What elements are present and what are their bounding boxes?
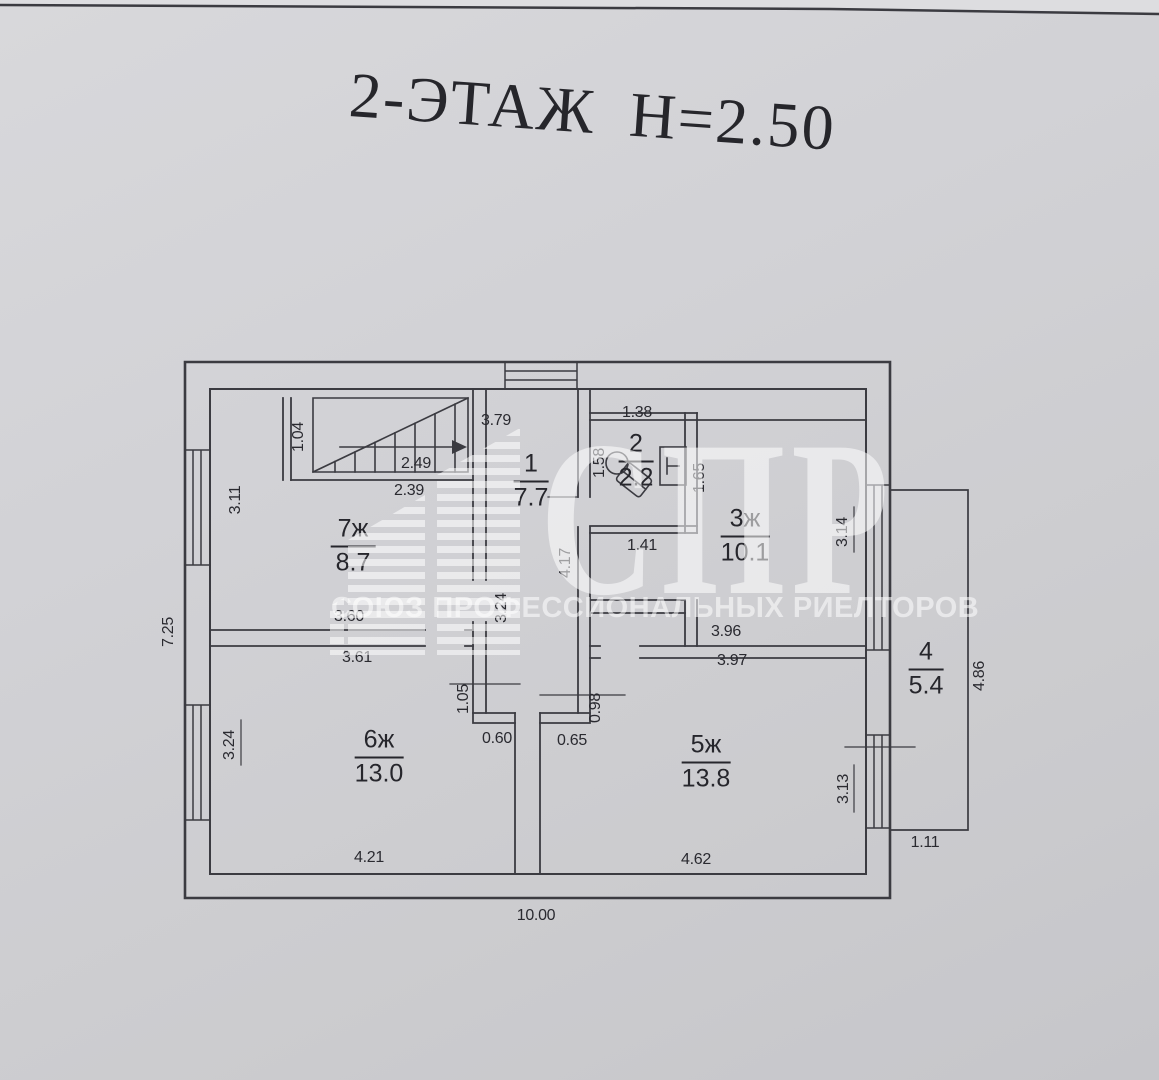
dim-room7-left: 3.11 [227,486,245,515]
dim-room6-left: 3.24 [221,730,239,760]
room-area: 8.7 [331,547,376,577]
room-area: 13.0 [355,758,404,788]
dim-stairs-run: 2.49 [401,455,431,473]
room-label-6: 6ж 13.0 [355,727,404,788]
dim-room5-bottom: 4.62 [681,851,711,869]
room-label-4: 4 5.4 [909,639,944,700]
dim-balcony-right: 4.86 [971,661,989,691]
scanned-floor-plan-page: 2-ЭТАЖ Н=2.50 1 7.7 2 2.2 3ж 10.1 4 5.4 … [0,0,1159,1080]
dim-vestibule-right: 0.98 [587,693,605,723]
dim-balcony-bottom: 1.11 [911,834,940,852]
dim-vestibule-left: 1.05 [455,684,473,714]
dim-total-width: 10.00 [517,907,556,925]
room-area: 13.8 [682,763,731,793]
room-label-5: 5ж 13.8 [682,732,731,793]
dim-room6-bottom: 4.21 [354,849,384,867]
dim-left-total: 7.25 [160,617,178,647]
dim-room5-top: 3.97 [717,652,747,670]
room-number: 4 [909,639,944,671]
dim-room5-right: 3.13 [835,774,853,804]
watermark-subtitle: СОЮЗ ПРОФЕССИОНАЛЬНЫХ РИЕЛТОРОВ [331,592,979,625]
room-number: 7ж [331,516,376,548]
dim-stub-right: 0.65 [557,732,587,750]
stairs-direction-arrow [452,440,467,454]
paper-edge [0,0,1159,14]
room-number: 5ж [682,732,731,764]
room-area: 5.4 [909,670,944,700]
staircase [313,398,468,472]
dim-stairs-length: 2.39 [394,482,424,500]
dim-room6-top: 3.61 [342,649,372,667]
room-label-7: 7ж 8.7 [331,516,376,577]
dim-stairs-width: 1.04 [290,422,308,452]
dim-stub-left: 0.60 [482,730,512,748]
room-number: 6ж [355,727,404,759]
dim-stairs-top: 3.79 [481,412,511,430]
